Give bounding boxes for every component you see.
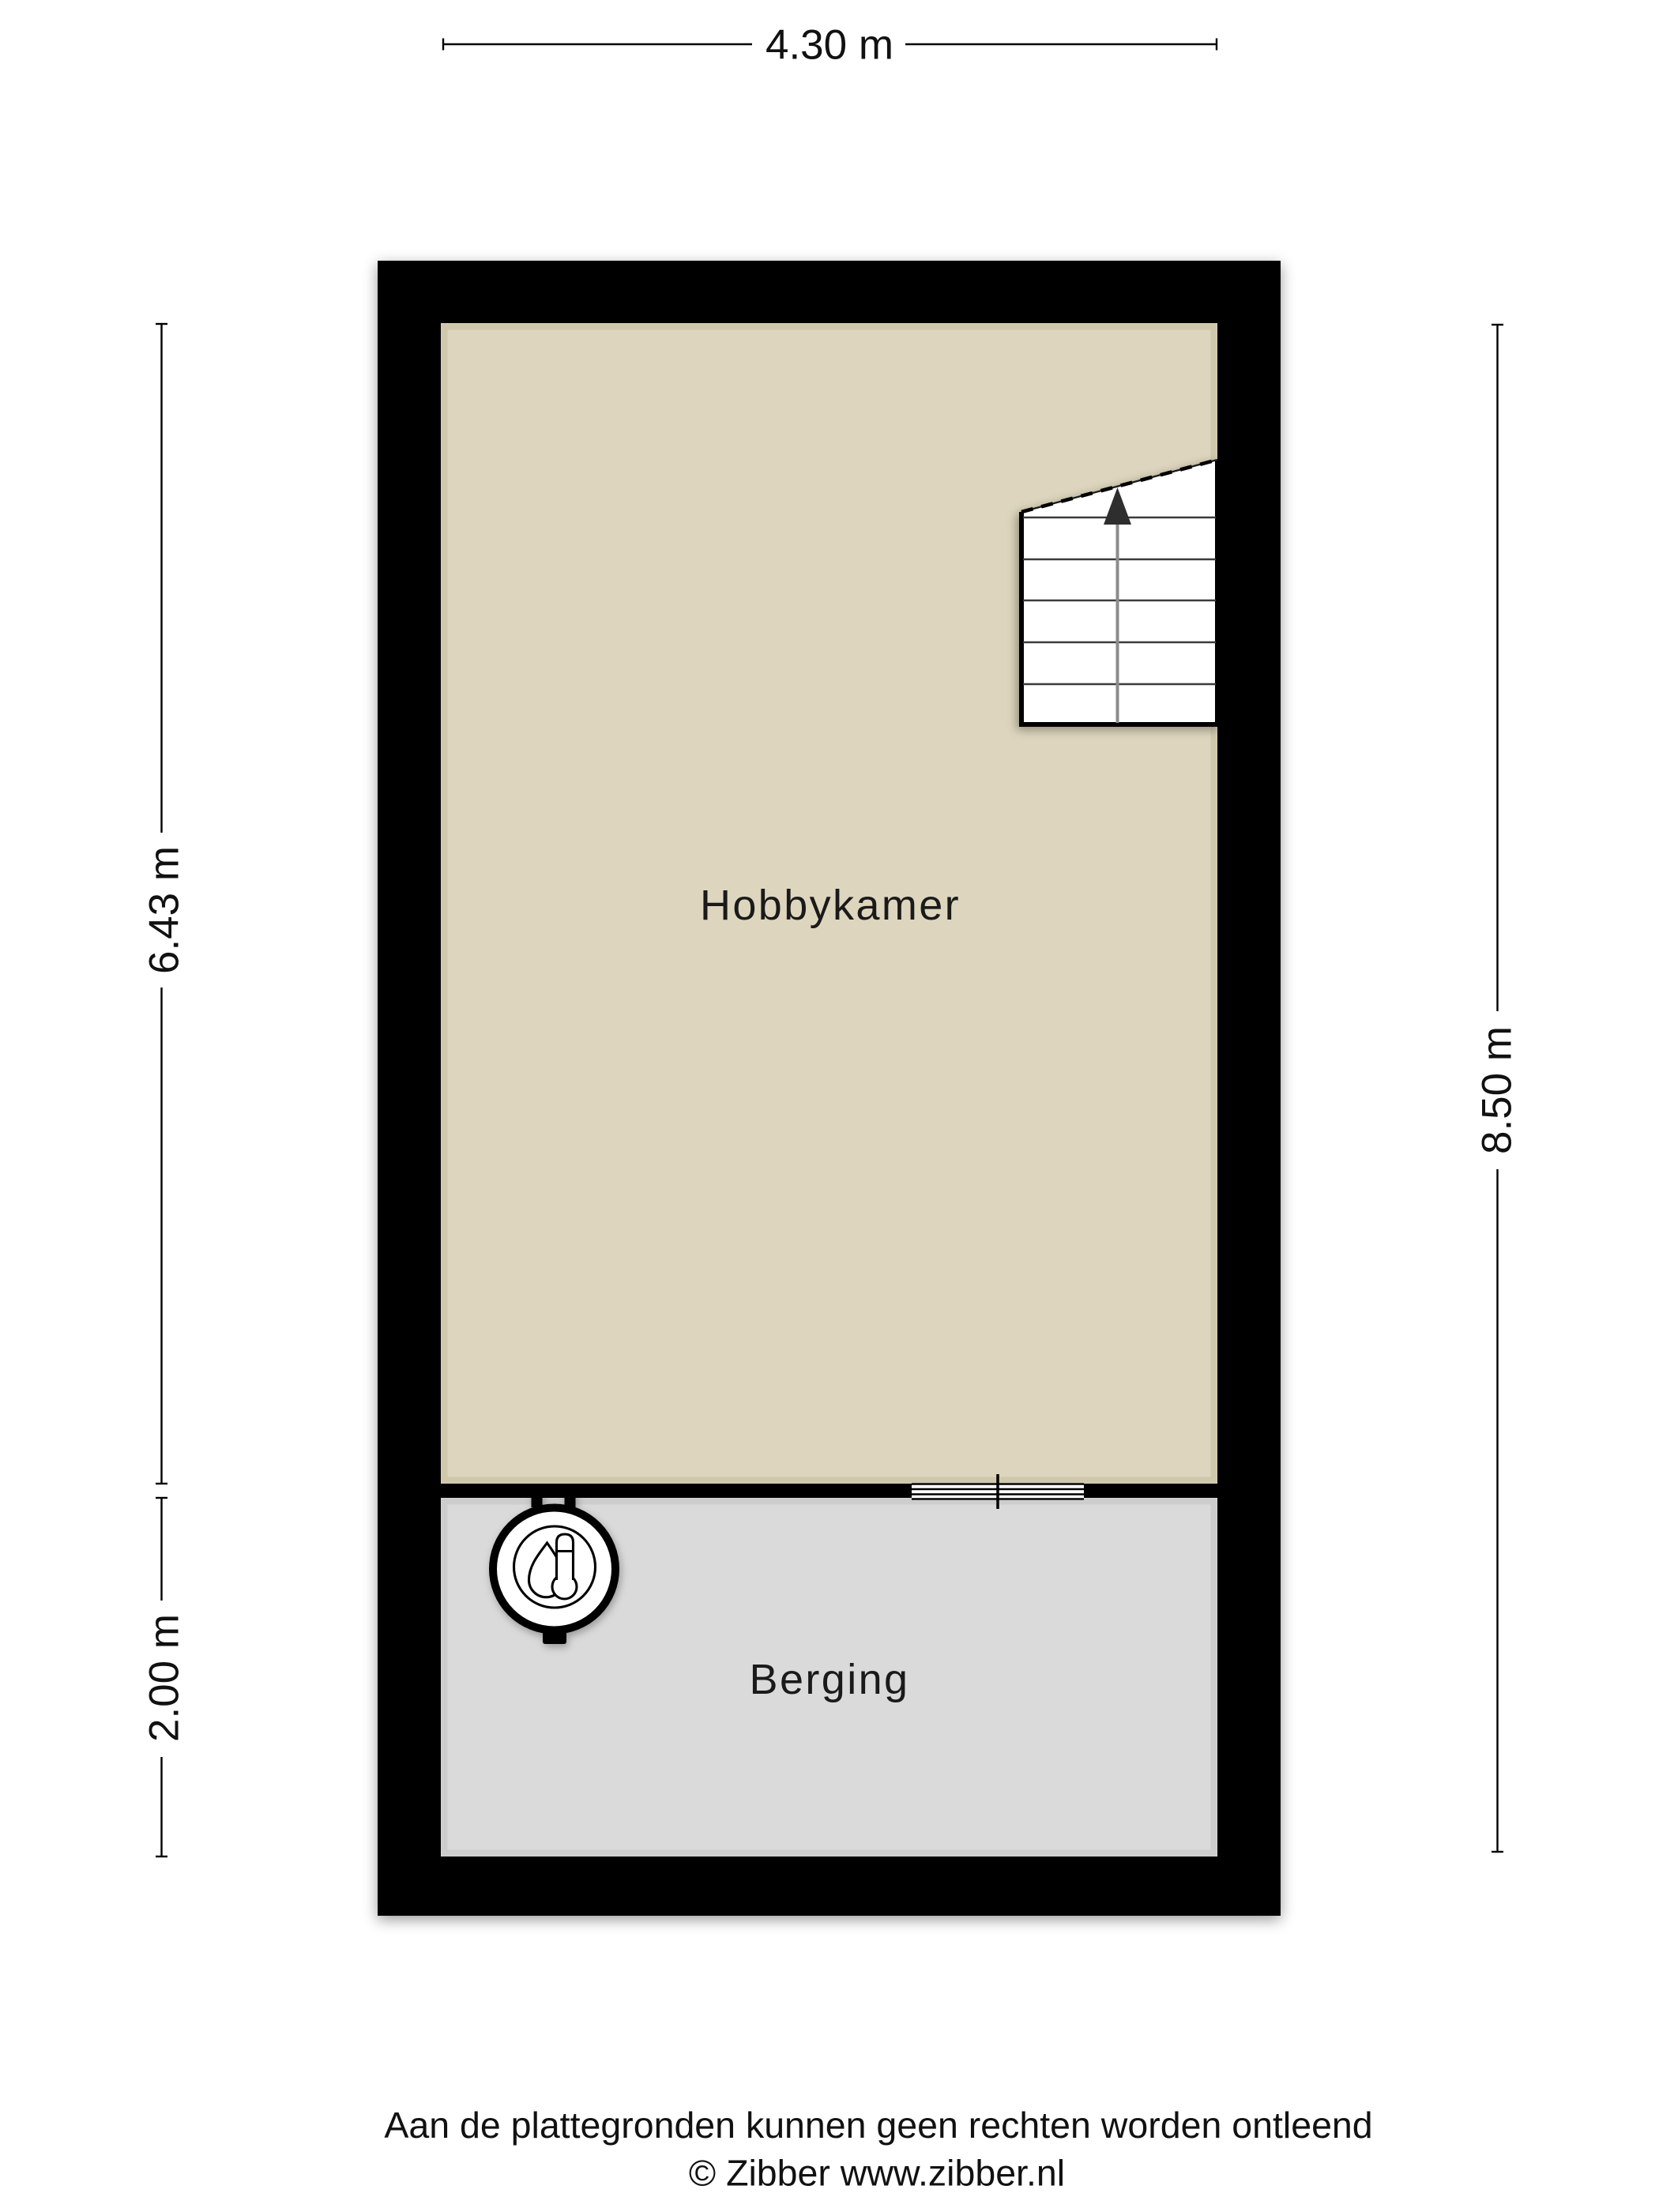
svg-text:© Zibber www.zibber.nl: © Zibber www.zibber.nl <box>689 2153 1065 2194</box>
svg-text:Hobbykamer: Hobbykamer <box>700 882 961 929</box>
svg-text:6.43 m: 6.43 m <box>141 846 188 974</box>
svg-text:4.30 m: 4.30 m <box>766 22 893 69</box>
svg-text:2.00 m: 2.00 m <box>141 1614 188 1742</box>
svg-text:Aan de plattegronden kunnen ge: Aan de plattegronden kunnen geen rechten… <box>384 2105 1372 2146</box>
svg-text:8.50 m: 8.50 m <box>1474 1026 1521 1154</box>
svg-text:Berging: Berging <box>750 1656 910 1703</box>
